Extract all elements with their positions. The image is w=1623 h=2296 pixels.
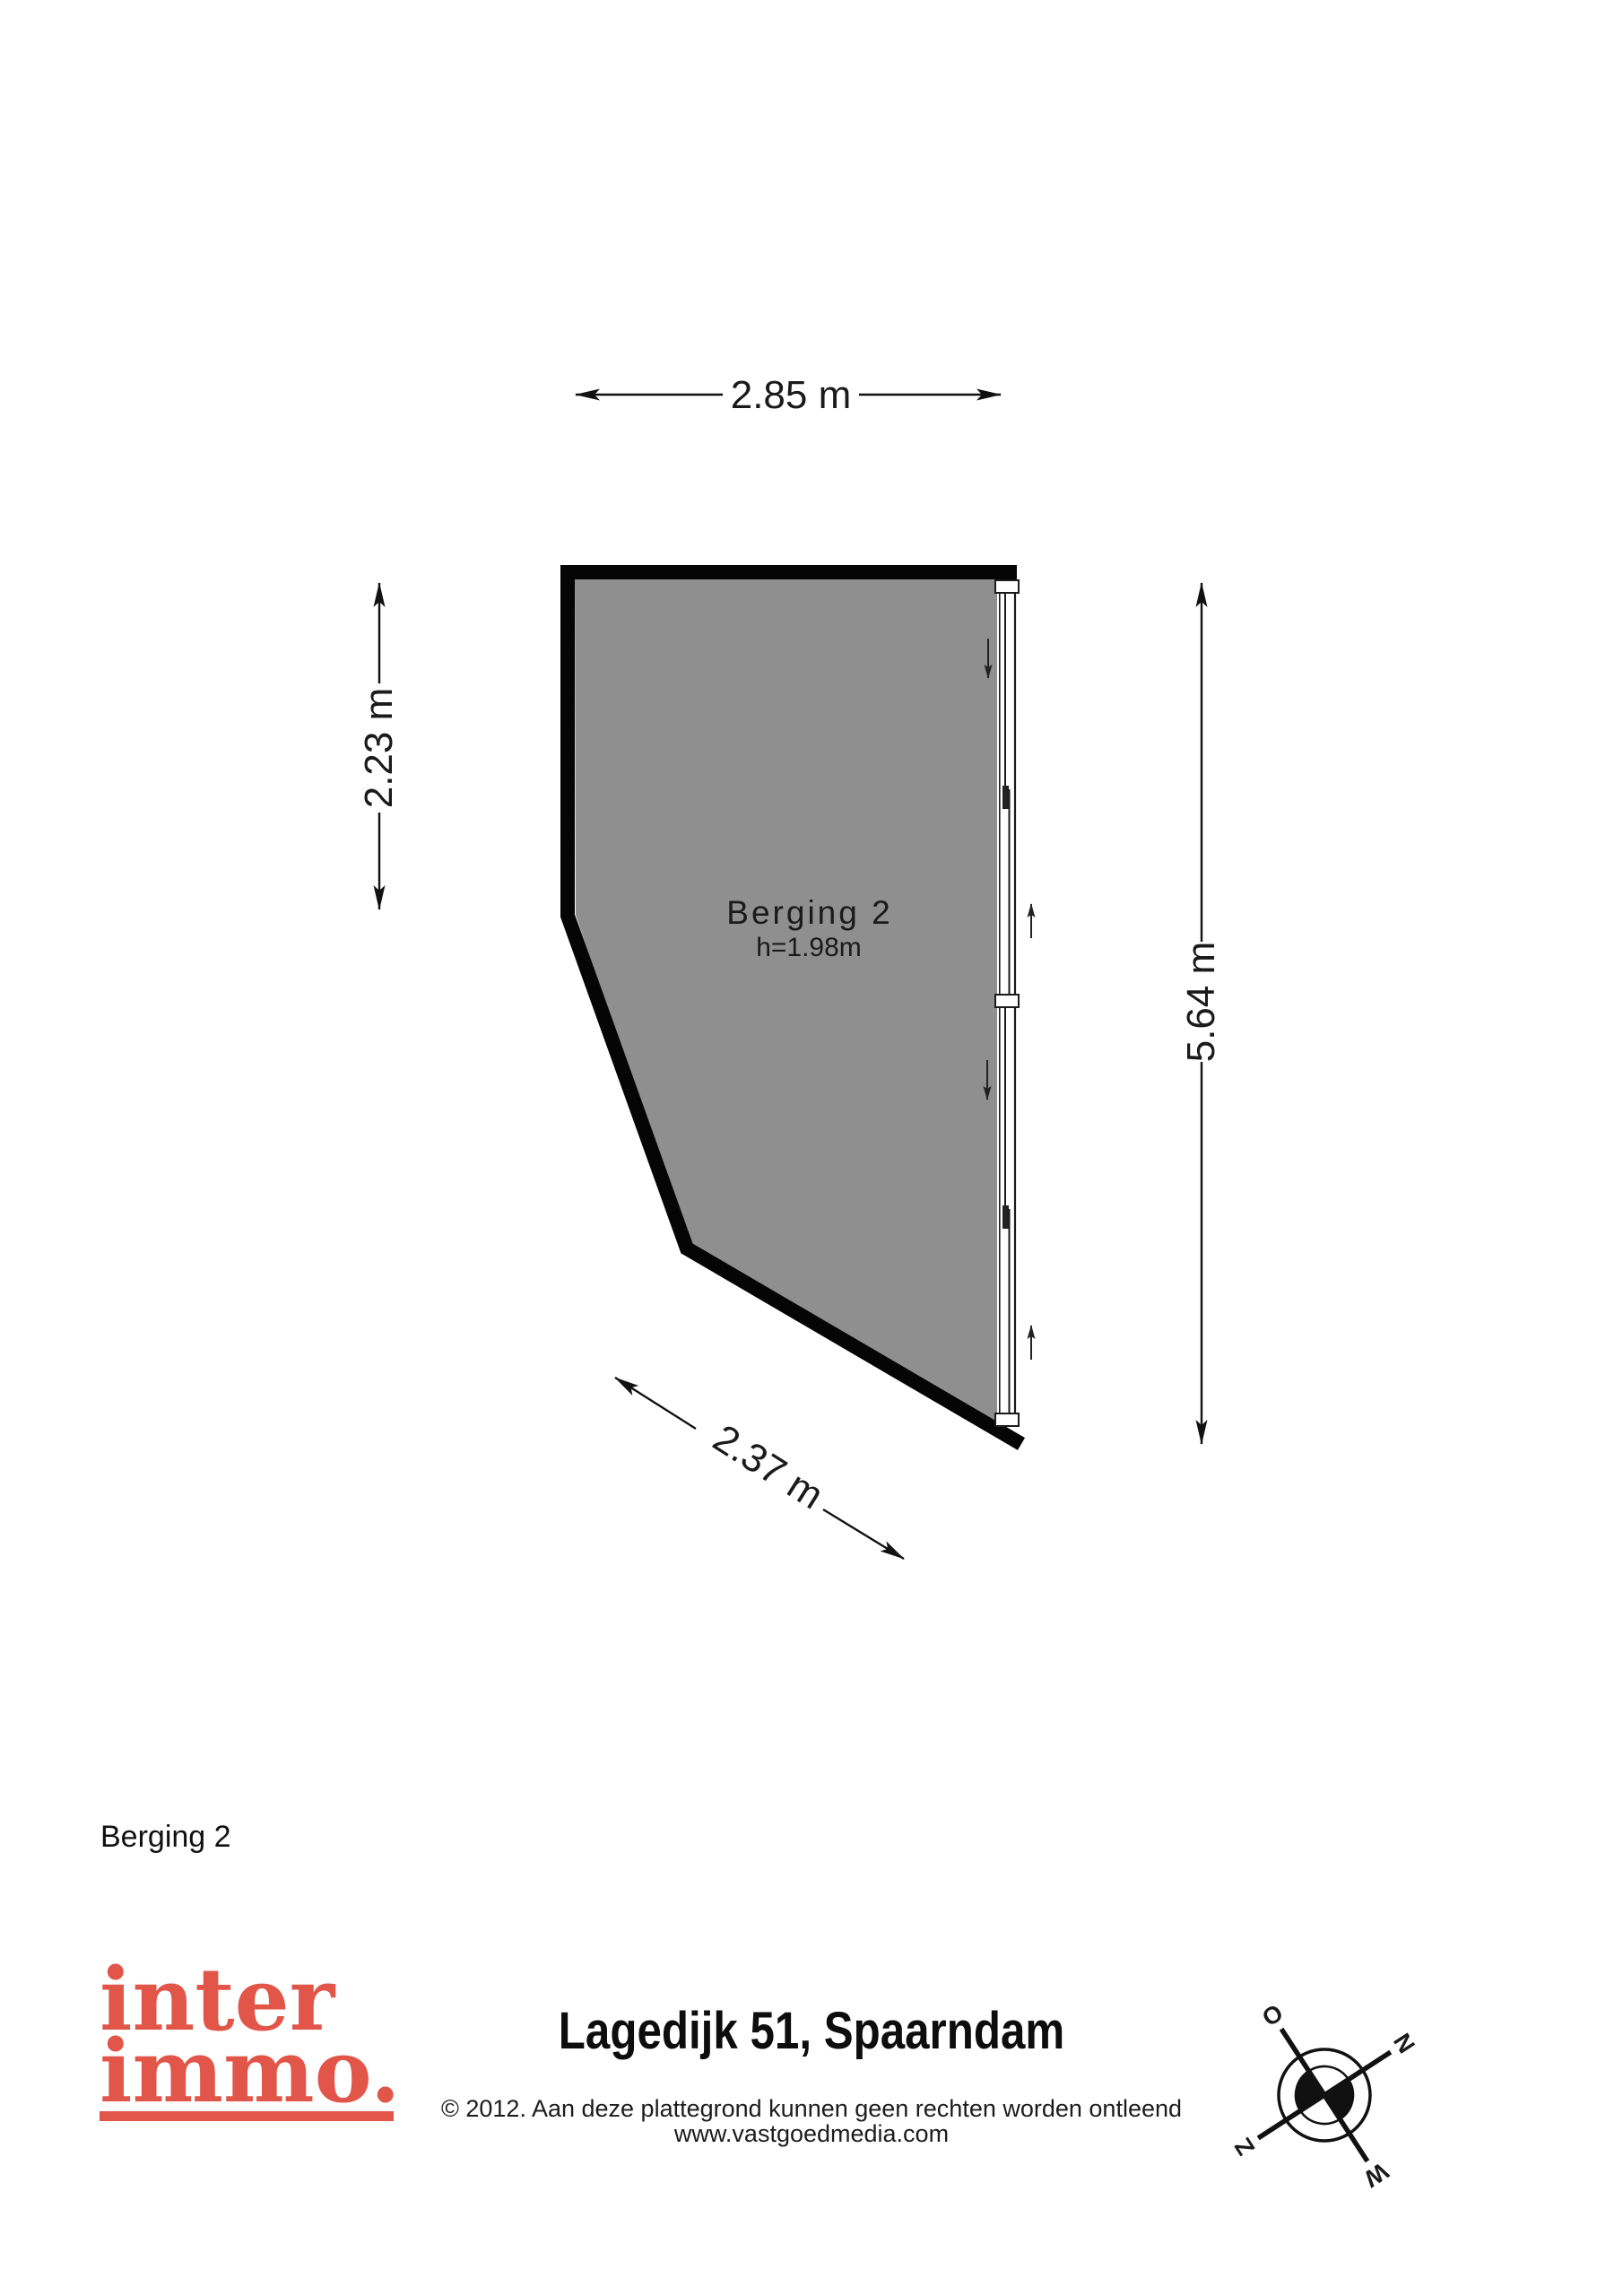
- track-cap: [995, 1413, 1019, 1426]
- floorplan-page: Berging 2 h=1.98m 2.85 m 2.23 m 5.64 m 2…: [0, 0, 1623, 2296]
- floor-name-label: Berging 2: [100, 1821, 231, 1854]
- copyright-line: © 2012. Aan deze plattegrond kunnen geen…: [0, 2096, 1623, 2121]
- address-title: Lagedijk 51, Spaarndam: [0, 2005, 1623, 2057]
- dimension-label: 2.23 m: [357, 688, 401, 809]
- track-cap: [995, 580, 1019, 593]
- sliding-door-track: [995, 579, 1019, 1426]
- door-handle: [1002, 1205, 1009, 1229]
- dimension-label: 5.64 m: [1179, 942, 1223, 1063]
- room-height-label: h=1.98m: [756, 933, 862, 962]
- compass-rose-icon: N W Z O: [1175, 1945, 1475, 2246]
- address-title-text: Lagedijk 51, Spaarndam: [559, 2005, 1064, 2057]
- dimension-label: 2.37 m: [706, 1416, 831, 1518]
- dimension-line: [823, 1509, 904, 1559]
- dimension-right: 5.64 m: [1179, 583, 1223, 1444]
- dimension-bottom: 2.37 m: [615, 1378, 904, 1559]
- door-handle: [1002, 786, 1009, 809]
- compass-label-west: W: [1358, 2157, 1393, 2192]
- dimension-top: 2.85 m: [576, 373, 1001, 417]
- copyright-block: © 2012. Aan deze plattegrond kunnen geen…: [0, 2096, 1623, 2146]
- dimension-left: 2.23 m: [357, 583, 401, 909]
- room-label: Berging 2: [726, 894, 892, 931]
- track-cap: [995, 995, 1019, 1007]
- dimension-line: [615, 1378, 696, 1429]
- dimension-label: 2.85 m: [731, 373, 852, 417]
- website-line: www.vastgoedmedia.com: [0, 2121, 1623, 2146]
